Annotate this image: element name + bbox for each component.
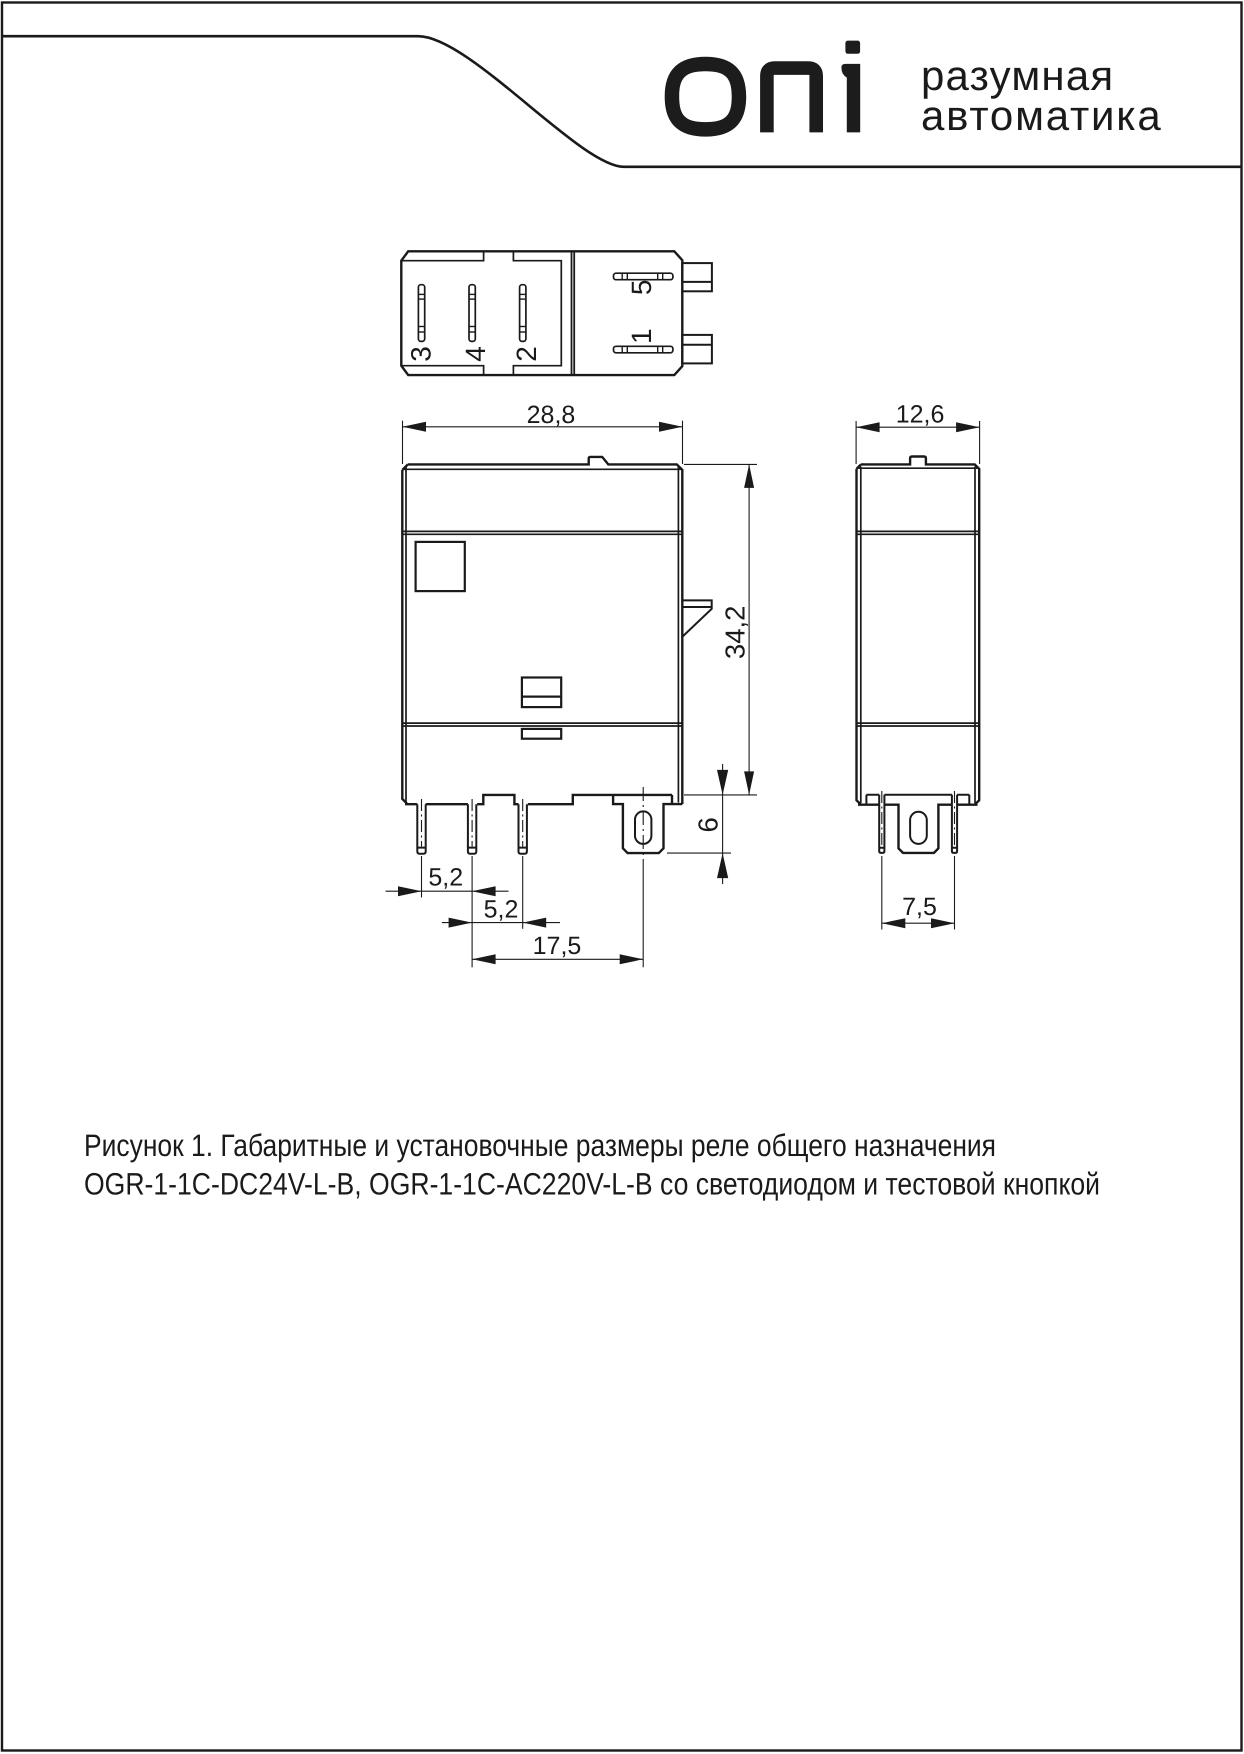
svg-text:28,8: 28,8 xyxy=(527,401,576,429)
svg-text:4: 4 xyxy=(460,346,491,362)
svg-text:5,2: 5,2 xyxy=(428,864,463,892)
svg-text:34,2: 34,2 xyxy=(720,606,751,660)
svg-text:5,2: 5,2 xyxy=(484,896,519,924)
svg-text:Рисунок 1. Габаритные и устано: Рисунок 1. Габаритные и установочные раз… xyxy=(84,1128,996,1163)
svg-text:OGR-1-1C-DC24V-L-B, OGR-1-1C-A: OGR-1-1C-DC24V-L-B, OGR-1-1C-AC220V-L-B … xyxy=(84,1167,1100,1202)
svg-text:5: 5 xyxy=(626,280,657,296)
svg-text:6: 6 xyxy=(693,817,724,832)
svg-text:2: 2 xyxy=(511,346,542,362)
svg-text:7,5: 7,5 xyxy=(902,893,937,921)
svg-text:17,5: 17,5 xyxy=(533,932,582,960)
svg-text:автоматика: автоматика xyxy=(921,92,1163,139)
svg-text:3: 3 xyxy=(406,346,437,362)
svg-text:1: 1 xyxy=(626,328,657,344)
svg-text:12,6: 12,6 xyxy=(896,401,945,429)
